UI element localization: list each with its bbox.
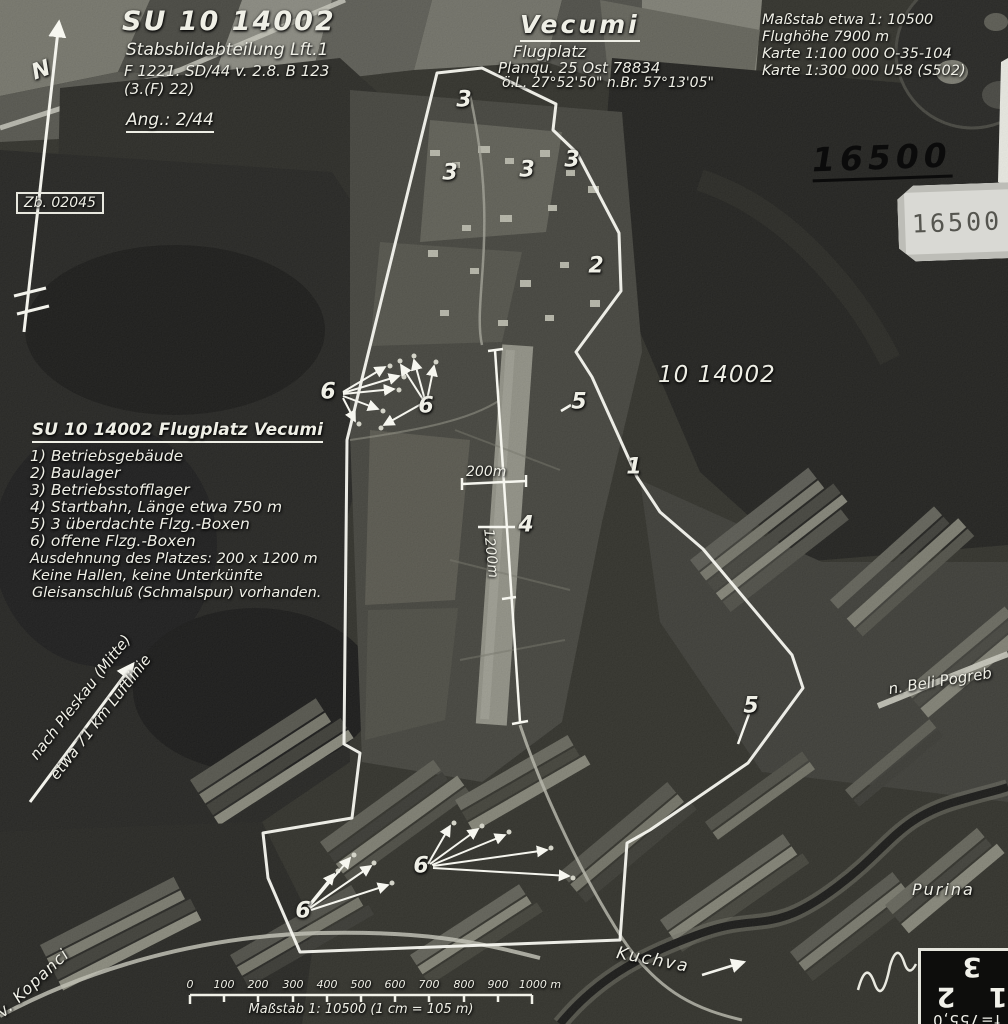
sticker-number: 16500 [911,206,1002,238]
scalebar-tick: 500 [351,978,372,991]
geo-coordinates: ö.L. 27°52'50" n.Br. 57°13'05" [502,75,714,91]
legend-title: SU 10 14002 Flugplatz Vecumi [32,420,323,440]
marker-3: 3 [519,158,534,183]
legend-note: Keine Hallen, keine Unterkünfte [32,568,263,584]
zb-number-box: Zb. 02045 [16,192,104,214]
legend-item: 2) Baulager [30,464,120,482]
scalebar-tick: 700 [419,978,440,991]
map-info-line-scale: Maßstab etwa 1: 10500 [762,12,933,29]
scalebar-caption: Maßstab 1: 10500 (1 cm = 105 m) [249,1002,474,1017]
film-data-strip: f=755,0 1 2 3 [918,948,1008,1024]
scalebar-tick: 300 [283,978,304,991]
photo-id: SU 10 14002 [122,6,336,37]
place-name-title: Vecumi [520,10,640,39]
photo-reference-number: 10 14002 [658,362,776,388]
scalebar-tick: 900 [488,978,509,991]
legend-item: 5) 3 überdachte Flzg.-Boxen [30,515,250,533]
marker-3: 3 [564,148,579,173]
marker-5: 5 [743,694,758,719]
legend-note: Gleisanschluß (Schmalspur) vorhanden. [32,585,321,601]
marker-3: 3 [456,88,471,113]
map-info-line-altitude: Flughöhe 7900 m [762,29,889,45]
scalebar-tick: 600 [385,978,406,991]
marker-6: 6 [418,394,433,419]
scalebar-tick: 1000 m [519,978,561,991]
focal-length-label: f=755,0 [921,1011,1008,1024]
marker-2: 2 [588,254,603,279]
signature-squiggle [858,953,916,991]
legend-item: 4) Startbahn, Länge etwa 750 m [30,498,282,516]
ang-reference: Ang.: 2/44 [126,110,214,130]
village-label-purina: Purina [912,880,975,899]
airfield-boundary-outline [263,68,803,952]
archive-number-sticker: 16500 [897,182,1008,262]
marker-5: 5 [571,390,586,415]
marker-1: 1 [626,455,641,480]
aerial-reconnaissance-photo: SU 10 14002 Stabsbildabteilung Lft.1 F 1… [0,0,1008,1024]
map-info-line-karte2: Karte 1:300 000 U58 (S502) [762,63,966,79]
scalebar-tick: 800 [454,978,475,991]
marker-3: 3 [442,161,457,186]
marker-4: 4 [518,513,533,538]
marker-6: 6 [320,380,335,405]
marker-6: 6 [295,899,310,924]
frame-digits: 1 2 3 [921,951,1008,1011]
scalebar-tick: 0 [187,978,194,991]
scalebar-tick: 200 [248,978,269,991]
handwritten-archive-number: 16500 [811,136,952,183]
legend-item: 3) Betriebsstofflager [30,481,190,499]
unit-name: Stabsbildabteilung Lft.1 [126,40,328,60]
scalebar-tick: 100 [214,978,235,991]
legend-item: 1) Betriebsgebäude [30,447,183,465]
runway-width-label: 200m [466,464,506,480]
mission-reference: F 1221. SD/44 v. 2.8. B 123 [124,62,329,80]
squadron-reference: (3.(F) 22) [124,80,194,98]
marker-6: 6 [413,854,428,879]
scalebar-tick: 400 [317,978,338,991]
kuchva-arrow [702,962,744,975]
legend-note: Ausdehnung des Platzes: 200 x 1200 m [30,551,318,567]
map-info-line-karte1: Karte 1:100 000 O-35-104 [762,46,952,62]
legend-item: 6) offene Flzg.-Boxen [30,532,196,550]
